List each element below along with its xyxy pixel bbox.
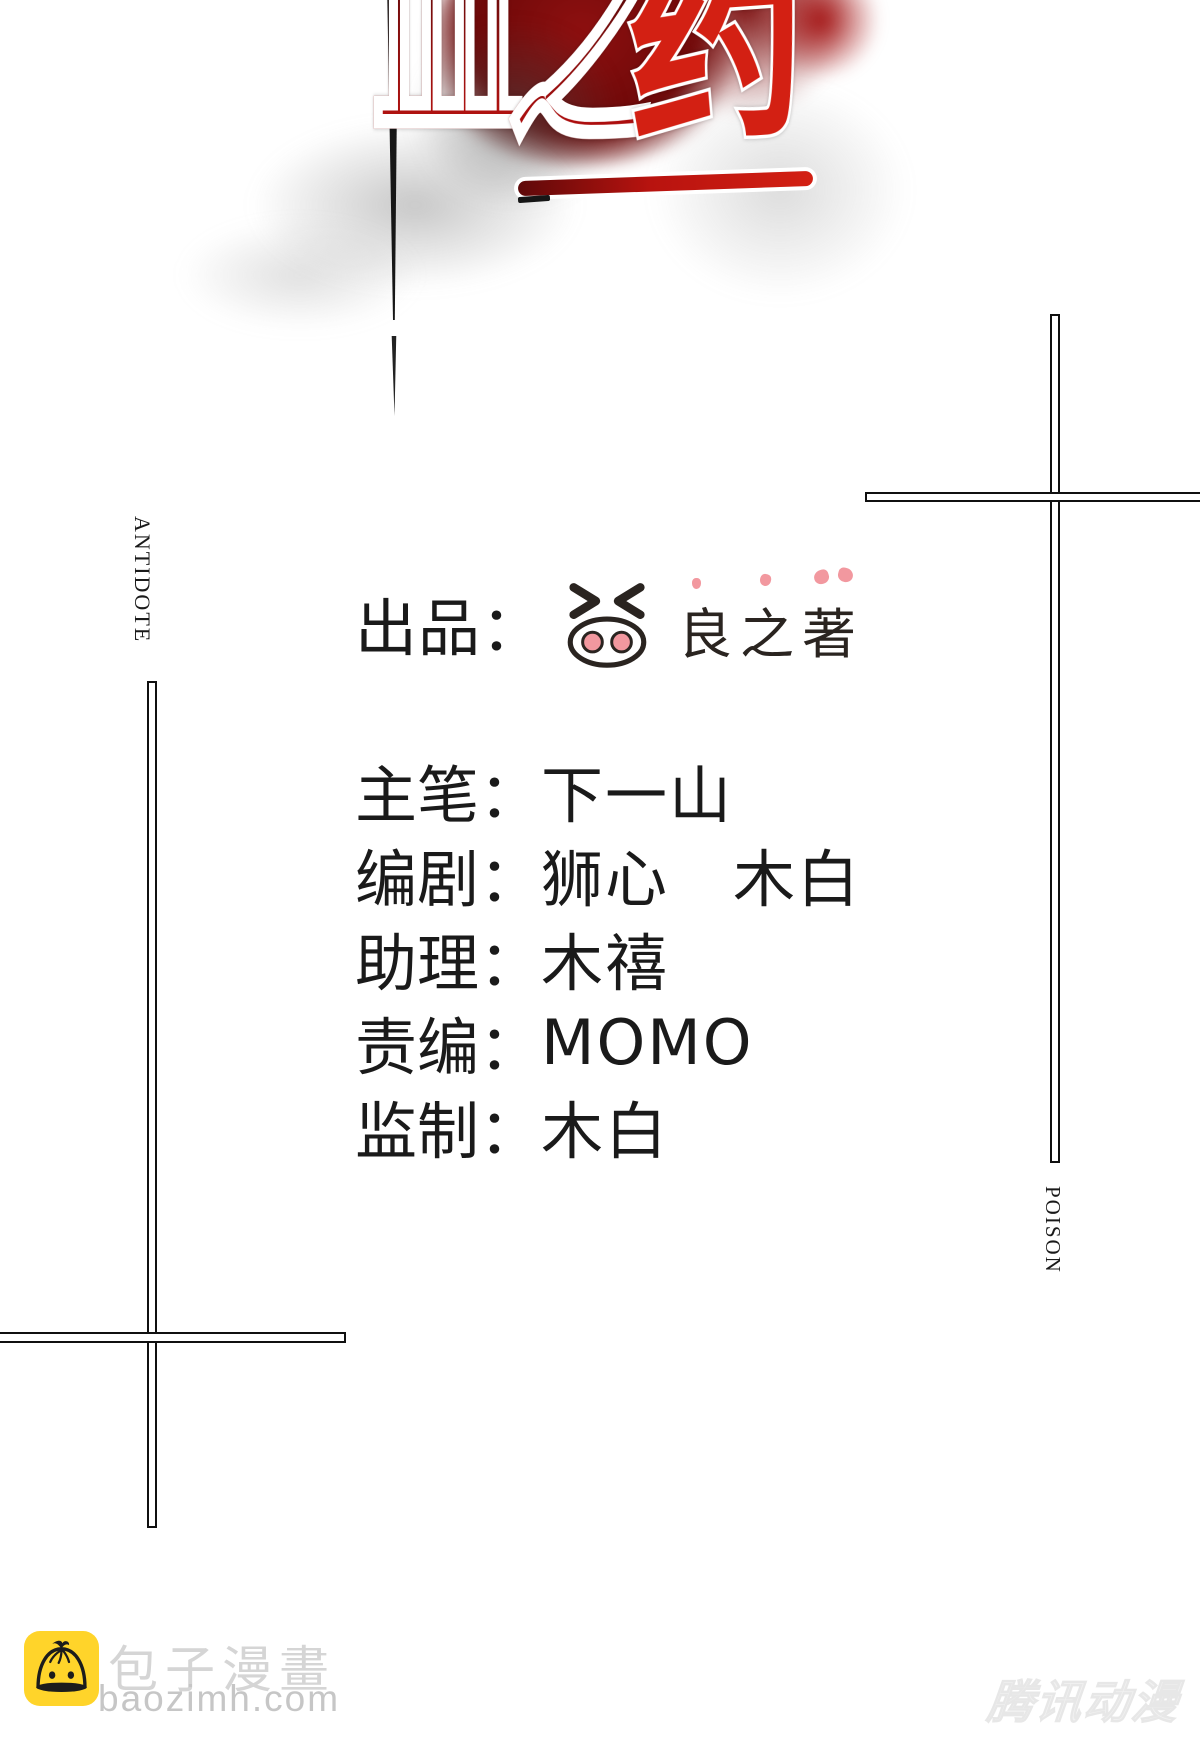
credit-list: 主笔：下一山 编剧：狮心 木白 助理：木禧 责编：MOMO 监制：木白: [355, 748, 861, 1168]
site-url: baozimh.com: [98, 1678, 340, 1720]
credit-row-supervisor: 监制：木白: [355, 1084, 861, 1168]
credit-row-artist: 主笔：下一山: [355, 748, 861, 832]
poison-label: POISON: [1040, 1186, 1065, 1311]
left-vertical-line: [147, 681, 157, 1528]
credit-value: 下一山: [541, 745, 733, 835]
pink-accent-mark: [759, 573, 772, 587]
credit-label: 责编：: [355, 997, 541, 1087]
antidote-label: ANTIDOTE: [129, 516, 155, 681]
credit-label: 监制：: [355, 1081, 541, 1171]
ink-smoke: [180, 220, 420, 330]
producer-label: 出品：: [355, 578, 544, 668]
credit-row-editor: 责编：MOMO: [355, 1000, 861, 1084]
credit-label: 编剧：: [355, 829, 541, 919]
brush-stroke-tip: [391, 336, 398, 416]
tencent-watermark: 腾讯动漫: [985, 1666, 1184, 1732]
right-vertical-line: [1050, 314, 1060, 1163]
producer-row: 出品： 良之著: [355, 570, 864, 675]
credit-value: 木禧: [541, 913, 669, 1003]
credit-value: 木白: [541, 1081, 669, 1171]
comic-credits-page: 血 之 药 ANTIDOTE POISON 出品： 良之著 主笔：下一山: [0, 0, 1200, 1738]
studio-name: 良之著: [678, 603, 864, 666]
studio-name-wrap: 良之著: [678, 590, 864, 669]
credit-row-writer: 编剧：狮心 木白: [355, 832, 861, 916]
baozimh-logo-icon: [24, 1631, 99, 1706]
pink-accent-mark: [812, 568, 831, 586]
title-artwork: 血 之 药: [0, 0, 1200, 430]
pig-face-logo-icon: [560, 575, 654, 675]
credit-value: MOMO: [541, 1006, 754, 1079]
title-char-xue: 血: [372, 0, 524, 153]
credit-label: 助理：: [355, 913, 541, 1003]
credit-label: 主笔：: [355, 745, 541, 835]
credit-row-assistant: 助理：木禧: [355, 916, 861, 1000]
left-horizontal-line: [0, 1332, 346, 1343]
pink-accent-mark: [692, 578, 701, 589]
title-char-yao: 药: [620, 0, 811, 161]
right-horizontal-line: [865, 492, 1200, 502]
credit-value: 狮心 木白: [541, 829, 861, 919]
pink-accent-mark: [836, 566, 854, 583]
